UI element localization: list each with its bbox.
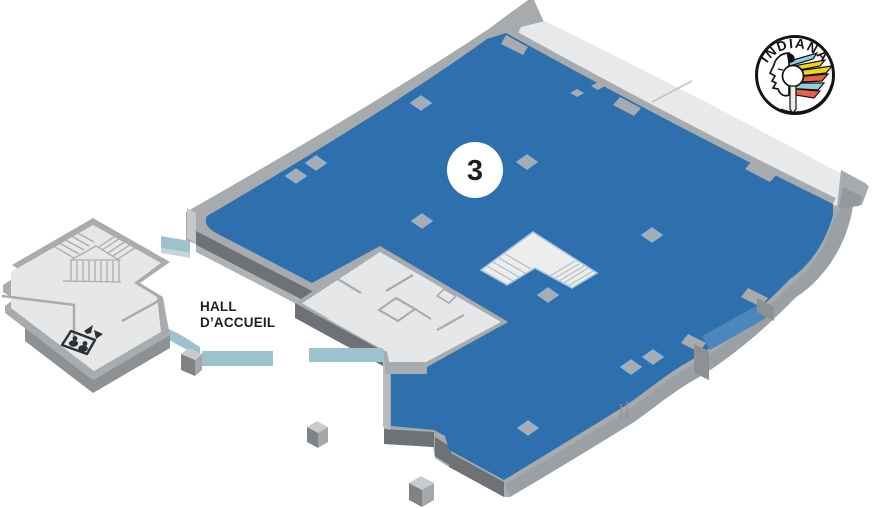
svg-text:HALL: HALL <box>200 299 237 314</box>
svg-text:3: 3 <box>467 155 483 187</box>
svg-text:D’ACCUEIL: D’ACCUEIL <box>200 315 275 330</box>
